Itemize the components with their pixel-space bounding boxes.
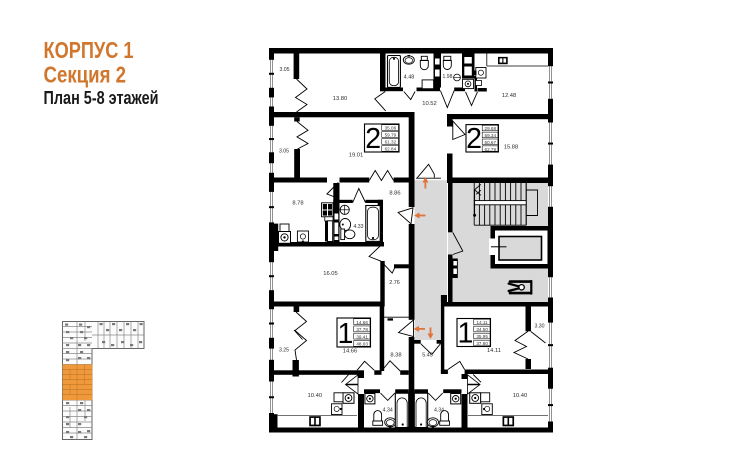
svg-text:14.66: 14.66: [343, 349, 358, 355]
svg-text:62.84: 62.84: [385, 147, 397, 152]
svg-text:8.38: 8.38: [390, 353, 401, 359]
svg-text:19.01: 19.01: [349, 153, 364, 159]
svg-text:60.67: 60.67: [485, 140, 497, 145]
svg-text:10.40: 10.40: [308, 393, 323, 399]
svg-text:14.66: 14.66: [356, 320, 368, 325]
svg-text:3.30: 3.30: [534, 324, 544, 330]
svg-text:62.79: 62.79: [485, 147, 497, 152]
svg-text:1: 1: [337, 318, 353, 350]
svg-text:3.05: 3.05: [279, 67, 289, 73]
svg-text:2.76: 2.76: [389, 280, 400, 286]
svg-text:3.05: 3.05: [279, 149, 289, 155]
svg-text:39.41: 39.41: [356, 334, 368, 339]
svg-text:КОРПУС 1: КОРПУС 1: [44, 37, 134, 63]
svg-text:12.48: 12.48: [502, 93, 517, 99]
svg-text:1: 1: [457, 317, 473, 349]
svg-text:35.06: 35.06: [385, 126, 397, 131]
svg-text:14.11: 14.11: [487, 348, 501, 354]
svg-text:2: 2: [466, 123, 482, 155]
svg-text:8.86: 8.86: [389, 191, 400, 197]
svg-text:10.40: 10.40: [513, 393, 528, 399]
svg-text:61.32: 61.32: [385, 140, 397, 145]
svg-text:15.88: 15.88: [504, 145, 519, 151]
svg-text:35.95: 35.95: [476, 334, 488, 339]
svg-text:37.60: 37.60: [476, 341, 488, 346]
svg-text:59.34: 59.34: [485, 133, 497, 138]
svg-text:48.03: 48.03: [356, 342, 368, 347]
svg-text:1.98: 1.98: [443, 74, 453, 80]
svg-text:16.05: 16.05: [323, 271, 338, 277]
svg-text:10.52: 10.52: [422, 101, 437, 107]
svg-text:План 5-8 этажей: План 5-8 этажей: [44, 87, 159, 108]
svg-text:4.34: 4.34: [434, 408, 444, 414]
svg-text:29.68: 29.68: [485, 126, 497, 131]
svg-text:13.80: 13.80: [333, 96, 348, 102]
svg-text:Секция 2: Секция 2: [44, 62, 127, 88]
svg-text:5.45: 5.45: [422, 353, 433, 359]
svg-text:3.25: 3.25: [279, 348, 289, 354]
svg-text:4.48: 4.48: [404, 75, 415, 81]
svg-text:14.11: 14.11: [477, 320, 489, 325]
svg-text:2: 2: [365, 123, 381, 155]
svg-text:8.78: 8.78: [292, 201, 303, 207]
svg-text:4.34: 4.34: [383, 408, 393, 414]
svg-text:59.79: 59.79: [385, 133, 397, 138]
svg-text:34.50: 34.50: [476, 327, 488, 332]
svg-text:4.33: 4.33: [353, 224, 363, 230]
svg-text:37.78: 37.78: [356, 327, 368, 332]
